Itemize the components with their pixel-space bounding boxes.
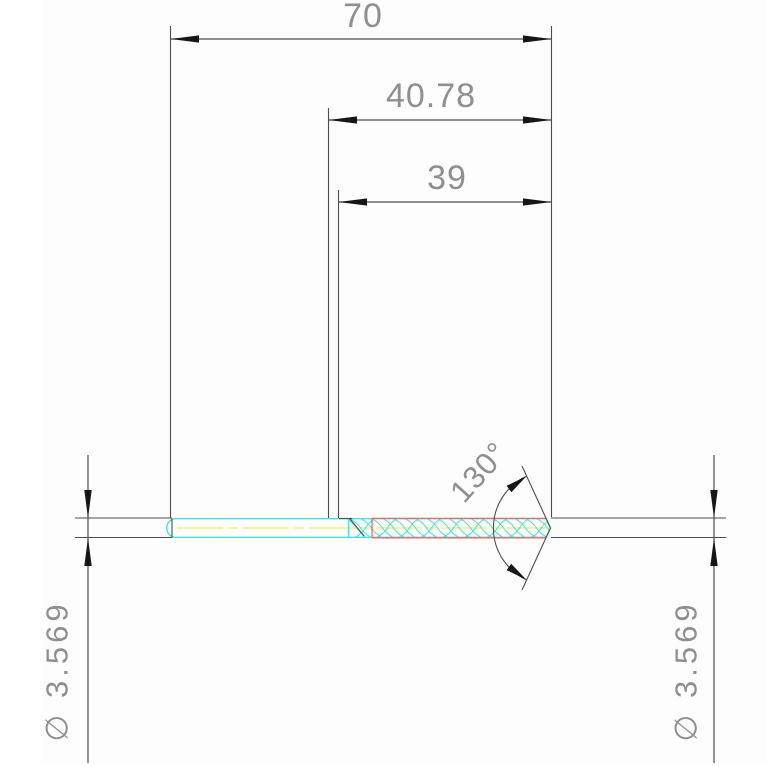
- bottom-margin: [0, 763, 767, 767]
- arrow-40-78-right: [523, 116, 552, 123]
- dimension-label-40-78: 40.78: [386, 79, 476, 113]
- dimension-label-diameter-left: ∅ 3.569: [42, 600, 73, 741]
- left-margin: [0, 0, 42, 767]
- arrow-70-left: [171, 35, 200, 42]
- arrow-70-right: [523, 35, 552, 42]
- arrow-diameter-left-bottom: [84, 538, 91, 566]
- arrow-diameter-left-top: [84, 490, 91, 518]
- dimension-label-70: 70: [343, 0, 383, 33]
- angle-arrow-bottom: [507, 564, 527, 580]
- arrow-39-left: [339, 198, 368, 205]
- arrow-diameter-right-bottom: [710, 538, 717, 566]
- angle-arrow-top: [507, 476, 527, 492]
- drawing-canvas: [0, 0, 767, 767]
- drill-body: [167, 518, 558, 538]
- dimension-label-39: 39: [427, 161, 467, 195]
- drill-left-cap: [167, 519, 176, 538]
- arrow-diameter-right-top: [710, 490, 717, 518]
- dimension-lines: [88, 39, 714, 763]
- arrow-40-78-left: [329, 116, 358, 123]
- dimension-label-diameter-right: ∅ 3.569: [671, 600, 702, 741]
- arrow-39-right: [523, 198, 552, 205]
- drawing-sheet: 70 40.78 39 130° ∅ 3.569 ∅ 3.569: [0, 0, 767, 767]
